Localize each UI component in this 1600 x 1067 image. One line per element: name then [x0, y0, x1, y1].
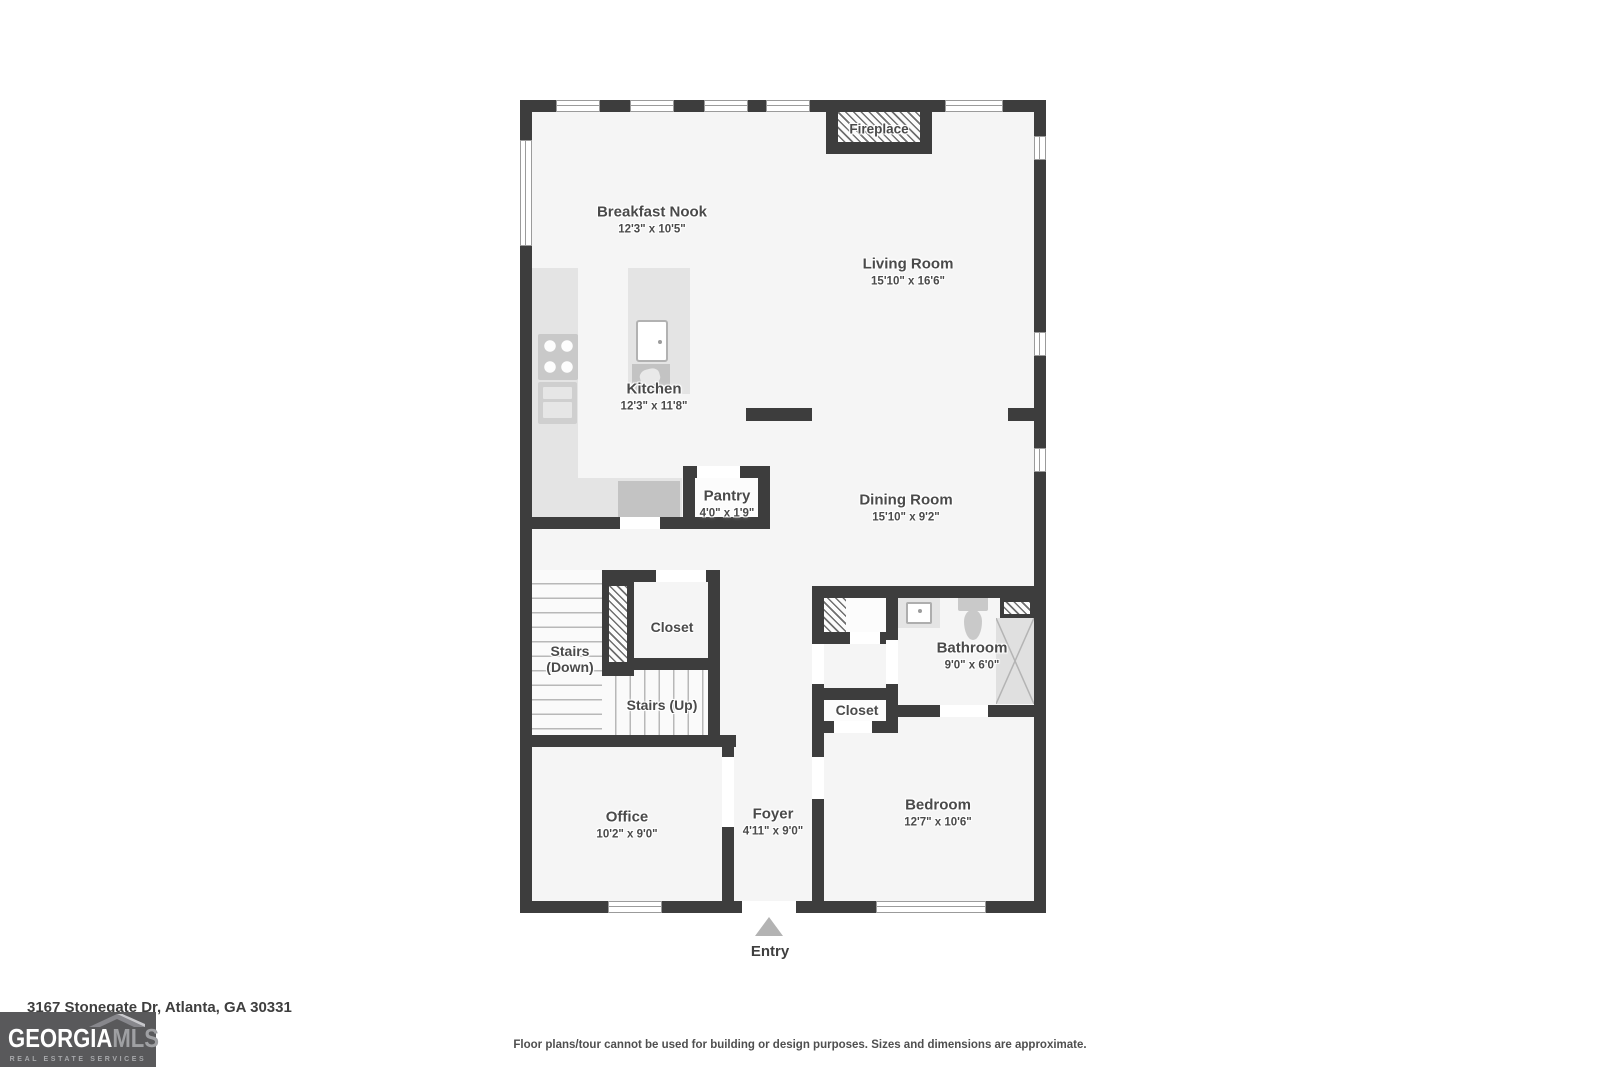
room-dims: 15'10" x 16'6": [863, 275, 954, 289]
entry-label: Entry: [751, 943, 789, 960]
stairs-down-line1: Stairs: [546, 643, 593, 659]
wall-right: [1034, 100, 1046, 913]
door-opening-bedroom: [812, 757, 824, 799]
disclaimer-text: Floor plans/tour cannot be used for buil…: [0, 1039, 1600, 1051]
room-label-office: Office 10'2" x 9'0": [596, 809, 657, 842]
georgia-mls-logo: GEORGIAMLS REAL ESTATE SERVICES: [0, 1012, 156, 1067]
room-name: Foyer: [743, 806, 804, 823]
stairs-down-line2: (Down): [546, 659, 593, 675]
bedroom-closet-label: Closet: [836, 702, 879, 718]
window: [556, 100, 600, 112]
window: [1034, 332, 1046, 356]
door-opening-office: [722, 757, 734, 827]
logo-text-georgia: GEORGIA: [8, 1023, 112, 1053]
room-dims: 12'7" x 10'6": [904, 816, 972, 830]
door-opening: [620, 517, 660, 529]
room-name: Kitchen: [621, 381, 688, 398]
room-dims: 4'11" x 9'0": [743, 825, 804, 839]
window: [704, 100, 748, 112]
entry-arrow-icon: [755, 917, 783, 936]
wall-stub-dining-left: [746, 408, 812, 421]
window: [1034, 448, 1046, 472]
wall-foyer-bedroom: [812, 799, 824, 913]
room-label-breakfast-nook: Breakfast Nook 12'3" x 10'5": [597, 204, 707, 237]
room-dims: 9'0" x 6'0": [937, 659, 1008, 673]
window: [945, 100, 1003, 112]
linen-wall-hatch: [824, 598, 846, 632]
hall-closet-label: Closet: [651, 619, 694, 635]
door-opening-pantry: [697, 466, 740, 478]
window: [520, 140, 532, 246]
kitchen-cabinet: [618, 481, 680, 517]
logo-tagline: REAL ESTATE SERVICES: [0, 1056, 156, 1063]
room-dims: 10'2" x 9'0": [596, 828, 657, 842]
room-name: Bathroom: [937, 640, 1008, 657]
door-opening-linen: [850, 632, 880, 644]
room-name: Office: [596, 809, 657, 826]
linen-closet-floor: [846, 598, 886, 632]
wall-pantry-right: [758, 466, 770, 529]
door-opening-bathroom-bottom: [940, 705, 988, 717]
room-name: Living Room: [863, 256, 954, 273]
room-label-bedroom: Bedroom 12'7" x 10'6": [904, 797, 972, 830]
handle-dot: [658, 340, 662, 344]
room-name: Pantry: [700, 488, 755, 505]
oven-door: [543, 402, 572, 418]
room-label-bathroom: Bathroom 9'0" x 6'0": [937, 640, 1008, 673]
room-dims: 4'0" x 1'9": [700, 507, 755, 521]
wall-bathroom-left: [886, 586, 898, 640]
room-dims: 15'10" x 9'2": [859, 511, 952, 525]
room-label-kitchen: Kitchen 12'3" x 11'8": [621, 381, 688, 414]
wall-stub-dining-right: [1008, 408, 1034, 421]
door-opening-entry: [742, 901, 796, 913]
wall-office-top: [520, 735, 736, 747]
room-dims: 12'3" x 10'5": [597, 223, 707, 237]
floor-plan-page: Breakfast Nook 12'3" x 10'5" Living Room…: [0, 0, 1600, 1067]
faucet-dot: [918, 609, 922, 613]
room-name: Dining Room: [859, 492, 952, 509]
logo-brand: GEORGIAMLS: [8, 1023, 159, 1054]
shower-block-hatch: [1004, 602, 1030, 614]
door-opening-closet: [656, 570, 706, 582]
door-opening-bathroom: [886, 640, 898, 684]
oven-icon: [538, 382, 577, 424]
door-opening-hall: [812, 644, 824, 684]
window: [766, 100, 810, 112]
door-opening-bedroom-closet: [834, 721, 872, 733]
stairs-up-label: Stairs (Up): [627, 697, 698, 713]
window: [876, 901, 986, 913]
room-label-foyer: Foyer 4'11" x 9'0": [743, 806, 804, 839]
room-name: Breakfast Nook: [597, 204, 707, 221]
wall-bathroom-top: [812, 586, 1034, 598]
wall-closet-right: [708, 570, 720, 735]
toilet-icon: [958, 596, 988, 611]
room-name: Bedroom: [904, 797, 972, 814]
fireplace-label: Fireplace: [849, 122, 908, 137]
oven-panel: [543, 387, 572, 399]
stove-icon: [538, 334, 578, 380]
bathroom-sink-icon: [906, 602, 932, 624]
wall-kitchen-hall: [520, 517, 620, 529]
wall-foyer-bedroom: [812, 733, 824, 759]
window: [608, 901, 662, 913]
room-dims: 12'3" x 11'8": [621, 400, 688, 414]
wall-office-foyer: [722, 827, 734, 913]
window: [630, 100, 674, 112]
stairs-down-label: Stairs (Down): [546, 643, 593, 675]
logo-text-mls: MLS: [112, 1023, 159, 1053]
refrigerator-icon: [636, 320, 668, 362]
room-label-pantry: Pantry 4'0" x 1'9": [700, 488, 755, 521]
window: [1034, 136, 1046, 160]
room-label-dining-room: Dining Room 15'10" x 9'2": [859, 492, 952, 525]
room-label-living-room: Living Room 15'10" x 16'6": [863, 256, 954, 289]
stairs-divider-hatch: [609, 586, 627, 662]
